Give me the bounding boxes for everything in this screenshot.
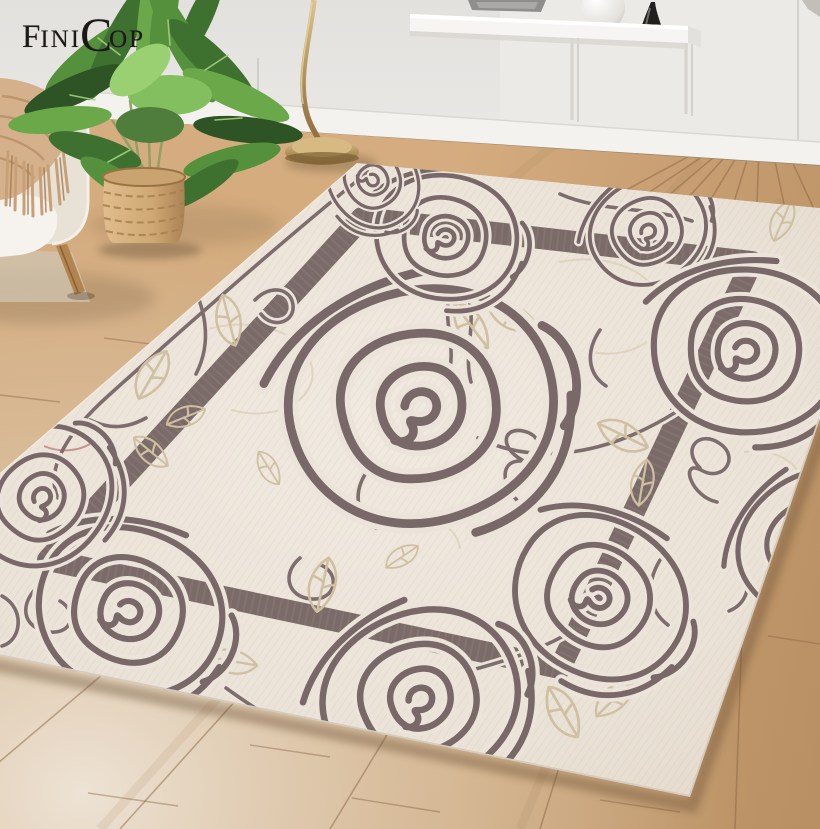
product-photo: FINICOP <box>0 0 820 829</box>
brand-logo: FINICOP <box>22 8 145 56</box>
lamp-base-rim <box>285 152 359 164</box>
brand-logo-c: C <box>80 12 112 60</box>
scene-canvas <box>0 0 820 829</box>
brand-logo-f: F <box>22 21 40 54</box>
shelf-tray-inner <box>476 2 538 9</box>
brand-logo-ini: INI <box>40 27 81 52</box>
woven-basket <box>103 168 185 243</box>
basket-rim <box>103 168 185 186</box>
armchair-leg-shadow <box>67 292 95 300</box>
brand-logo-op: OP <box>109 27 145 52</box>
